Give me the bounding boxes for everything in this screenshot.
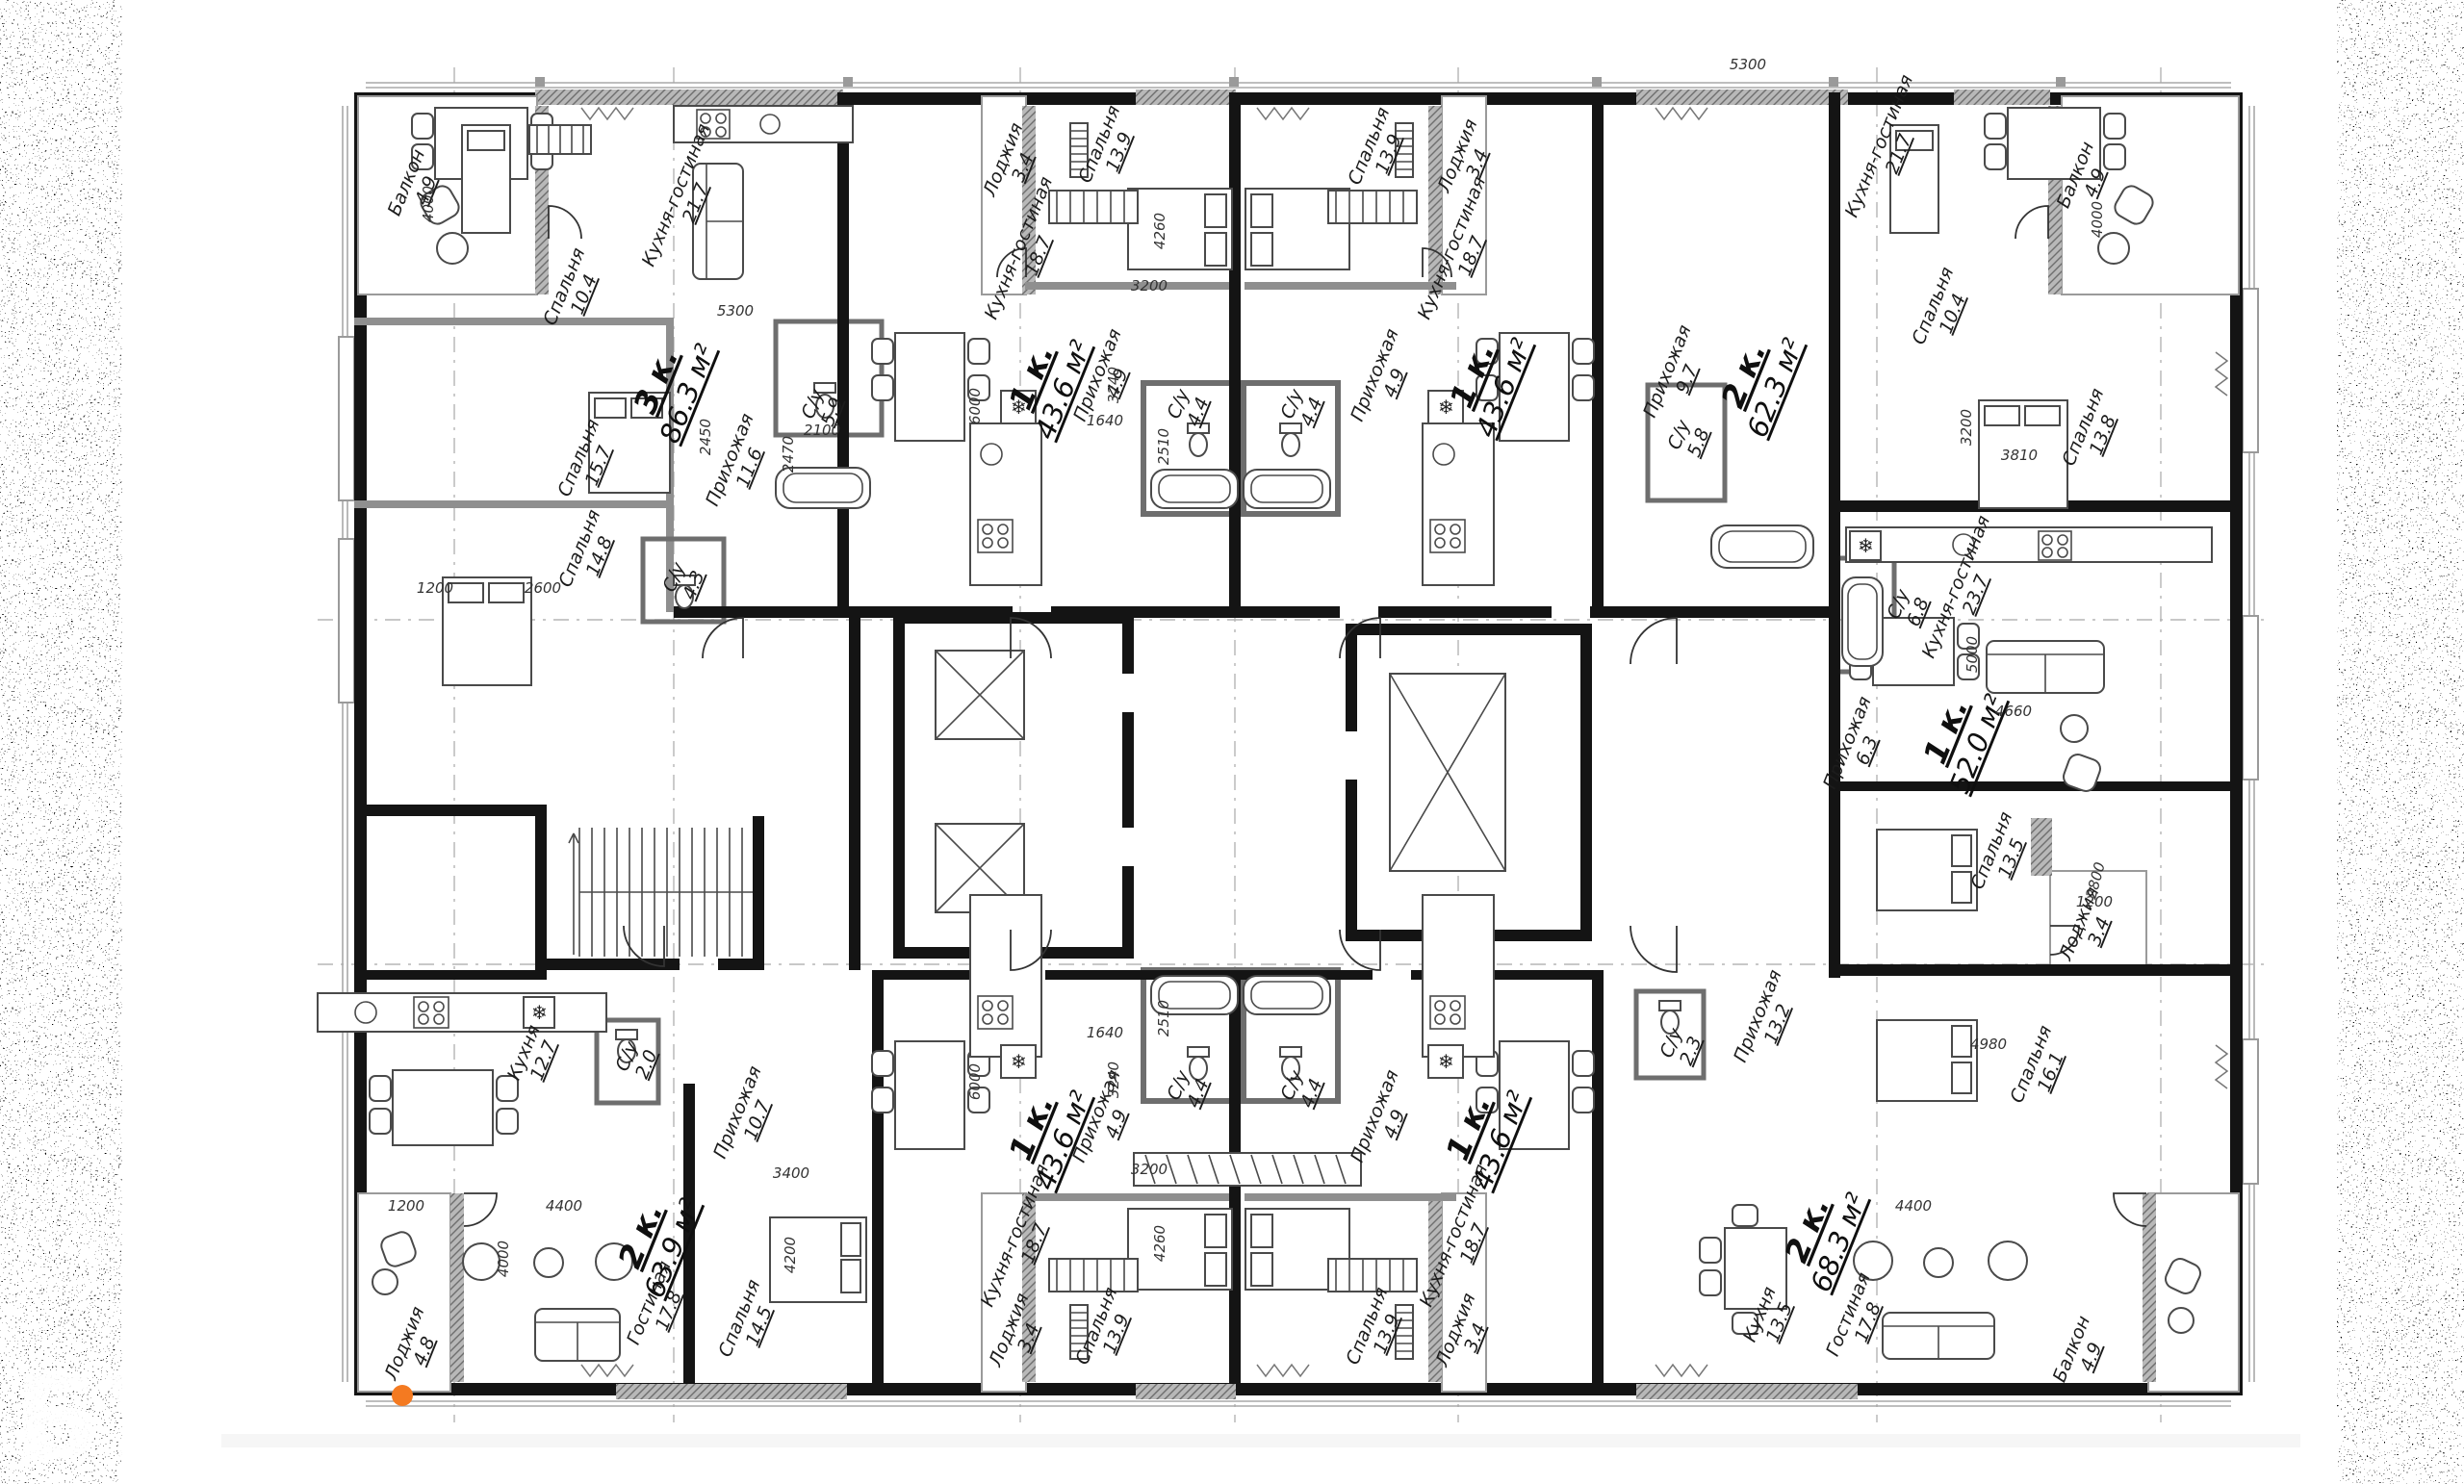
- svg-text:4000: 4000: [2089, 201, 2106, 238]
- noise-band-right: [2337, 0, 2464, 1484]
- bed: [1128, 189, 1232, 269]
- bathtub: [776, 468, 870, 508]
- svg-text:5300: 5300: [1730, 56, 1766, 73]
- sofa: [1883, 1313, 1994, 1359]
- floor-plan-screenshot: ❄ ❄ ❄ ❄ ❄ ❄: [0, 0, 2464, 1484]
- svg-text:3200: 3200: [1958, 409, 1975, 446]
- armchair: [463, 1243, 632, 1280]
- fridge-icon: ❄: [1001, 1045, 1036, 1078]
- svg-text:4200: 4200: [782, 1237, 799, 1273]
- wardrobe: [529, 125, 591, 154]
- svg-text:❄: ❄: [1011, 1050, 1027, 1073]
- svg-text:4000: 4000: [420, 186, 437, 222]
- svg-text:3810: 3810: [2001, 447, 2038, 464]
- svg-text:4400: 4400: [1895, 1197, 1932, 1215]
- wardrobe: [1328, 191, 1417, 223]
- svg-text:5000: 5000: [1963, 636, 1981, 673]
- kitchen-counter: [1846, 527, 2212, 562]
- bathtub: [1244, 976, 1330, 1014]
- sofa: [693, 164, 743, 279]
- kitchen-counter: [318, 993, 606, 1032]
- svg-text:3240: 3240: [1105, 1062, 1122, 1098]
- svg-text:6000: 6000: [966, 1063, 984, 1100]
- elevator-shaft-icon: [1390, 674, 1505, 871]
- svg-text:1200: 1200: [388, 1197, 424, 1215]
- bed: [462, 125, 510, 233]
- noise-band-left: [0, 0, 122, 1484]
- kitchen-counter: [970, 895, 1041, 1057]
- svg-text:3240: 3240: [1105, 367, 1122, 403]
- svg-text:2100: 2100: [804, 422, 840, 439]
- wardrobe: [1049, 1259, 1138, 1292]
- wardrobe: [1049, 191, 1138, 223]
- bed: [1128, 1209, 1232, 1290]
- svg-text:4980: 4980: [1970, 1036, 2007, 1053]
- bathtub: [1151, 470, 1238, 508]
- svg-text:1200: 1200: [417, 579, 453, 597]
- watermark-orange-dot: [392, 1385, 413, 1406]
- bed: [1877, 830, 1977, 910]
- svg-text:4260: 4260: [1151, 1225, 1168, 1262]
- svg-text:3400: 3400: [773, 1164, 809, 1182]
- bathtub: [1244, 470, 1330, 508]
- svg-text:2470: 2470: [780, 436, 797, 473]
- floor-plan-drawing: ❄ ❄ ❄ ❄ ❄ ❄: [0, 0, 2464, 1484]
- svg-text:2510: 2510: [1155, 1000, 1172, 1036]
- svg-text:1640: 1640: [1087, 412, 1123, 429]
- fridge-icon: ❄: [1850, 531, 1881, 560]
- watermark-letters: БУ: [13, 1353, 191, 1484]
- fridge-icon: ❄: [524, 997, 554, 1028]
- svg-text:❄: ❄: [531, 1001, 548, 1024]
- sofa: [535, 1309, 620, 1361]
- watermark-faint-band: [221, 1434, 2300, 1447]
- kitchen-counter: [1423, 423, 1494, 585]
- bed: [1877, 1020, 1977, 1101]
- fridge-icon: ❄: [1428, 1045, 1463, 1078]
- svg-text:1640: 1640: [1087, 1024, 1123, 1041]
- svg-text:4400: 4400: [546, 1197, 582, 1215]
- svg-text:2600: 2600: [525, 579, 561, 597]
- toilet: [1280, 423, 1301, 456]
- bathtub: [1711, 525, 1813, 568]
- svg-text:2450: 2450: [697, 419, 714, 455]
- bed: [443, 577, 531, 685]
- svg-text:4660: 4660: [1995, 703, 2032, 720]
- svg-text:3200: 3200: [1131, 1161, 1168, 1178]
- bathtub: [1842, 577, 1883, 666]
- elevator-shaft-icon: [936, 651, 1024, 739]
- svg-text:4000: 4000: [495, 1241, 512, 1277]
- kitchen-counter: [1423, 895, 1494, 1057]
- wardrobe: [1134, 1153, 1361, 1186]
- svg-text:❄: ❄: [1438, 1050, 1454, 1073]
- svg-text:1200: 1200: [2076, 893, 2113, 910]
- svg-text:3200: 3200: [1131, 277, 1168, 294]
- svg-text:4260: 4260: [1151, 213, 1168, 249]
- svg-text:6000: 6000: [966, 388, 984, 424]
- kitchen-counter: [970, 423, 1041, 585]
- svg-text:❄: ❄: [1858, 534, 1874, 557]
- svg-text:5300: 5300: [717, 302, 754, 320]
- sofa: [1987, 641, 2104, 693]
- svg-text:2510: 2510: [1155, 428, 1172, 465]
